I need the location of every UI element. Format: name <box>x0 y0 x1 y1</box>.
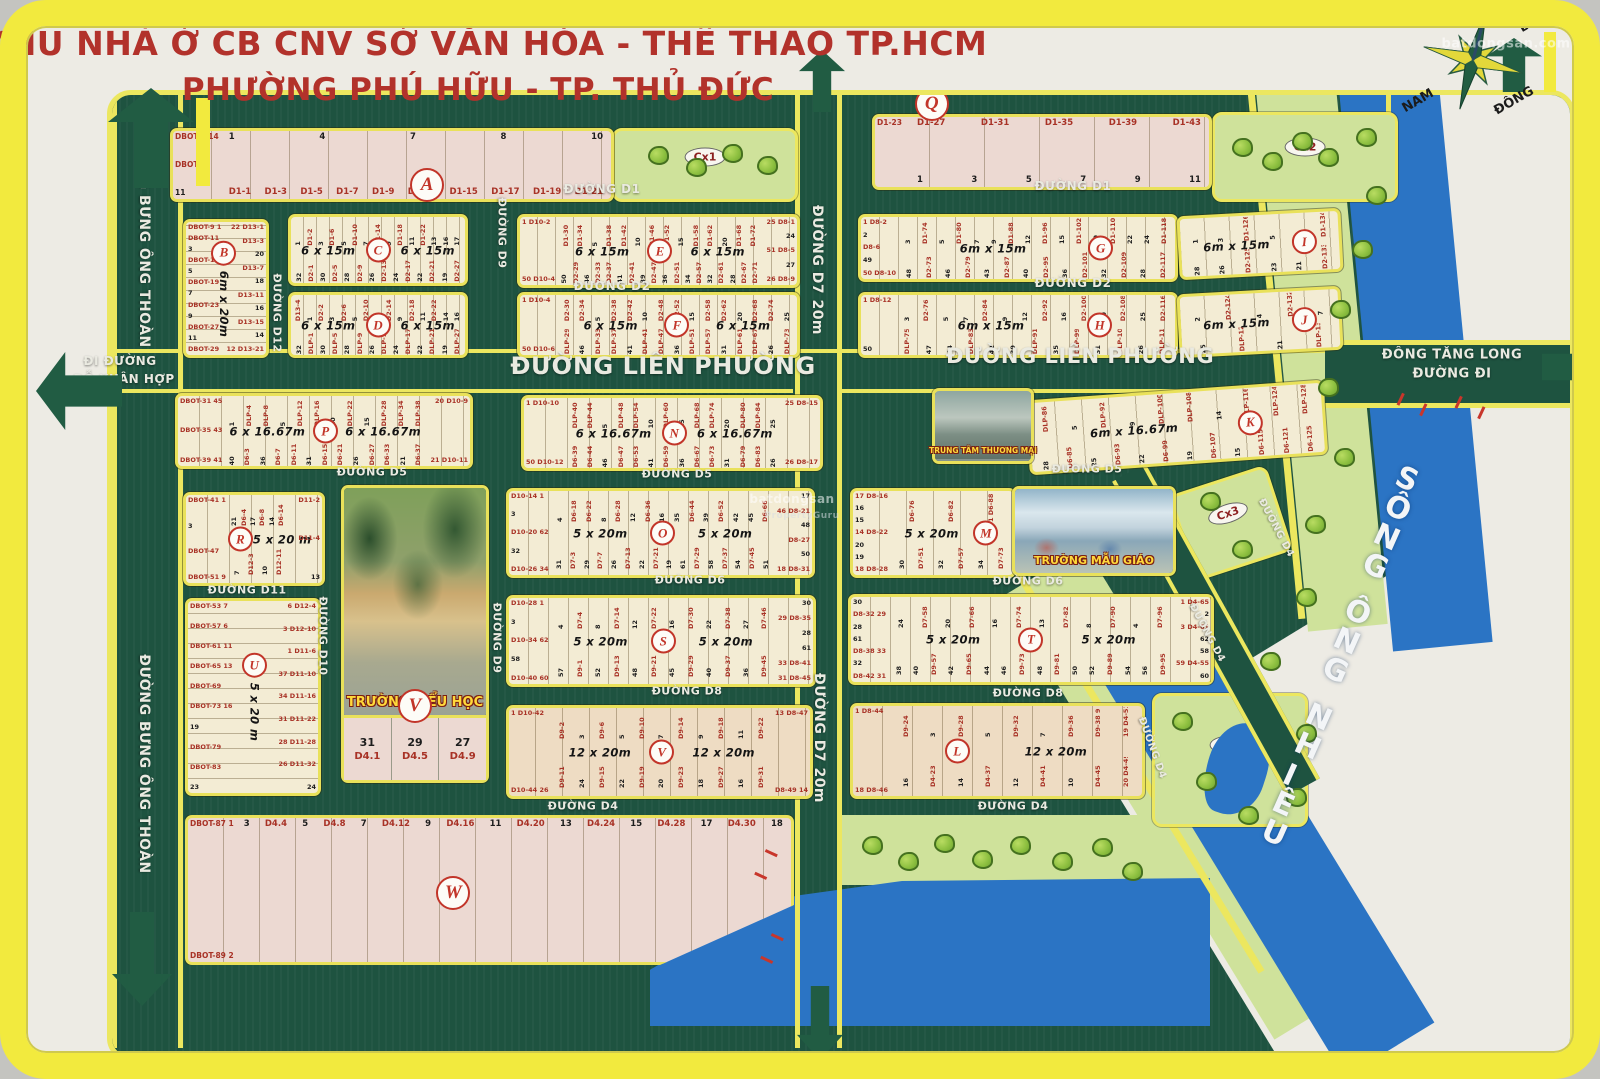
plot-label: D2-101 <box>1082 252 1089 278</box>
road-curb-line <box>112 95 117 1048</box>
block-L: 1 D8-4418 D8-46D9-243D9-285D9-327D9-36D9… <box>850 703 1145 799</box>
plot-label: D2-133 <box>1321 244 1329 269</box>
plot-label: 1 D10-4 <box>522 297 555 304</box>
plot-label: 7 <box>234 545 241 575</box>
block-bottom-labels: D6-39D6-4446D6-47D6-5341D6-5936D6-67D6-7… <box>566 437 784 468</box>
plot-label: D6-47 <box>618 438 625 467</box>
plot-label: 25 <box>770 399 777 428</box>
poster-title-line2: PHƯỜNG PHÚ HỮU - TP. THỦ ĐỨC <box>182 72 774 108</box>
block-N: 1 D10-1050 D10-12DLP-40DLP-445DLP-48DLP-… <box>521 395 823 471</box>
block-letter-W: W <box>436 876 470 910</box>
plot-label: 46 <box>602 438 609 467</box>
plot-label: D1-17 <box>491 188 519 197</box>
plot-label: D10-14 1 <box>511 493 549 500</box>
plot-label: 13 <box>1039 598 1046 628</box>
plot-label: D10-44 26 <box>511 787 549 794</box>
plot-cell: 27D4.9 <box>439 718 486 780</box>
plot-label: 10 <box>591 133 603 142</box>
street-label: ĐƯỜNG D11 <box>207 584 286 597</box>
block-center: D13-41D2-23D2-65D2-107D2-149D2-1811D2-22… <box>291 295 465 355</box>
plot-label: D9-10 <box>639 709 646 739</box>
plot-label: D4.28 <box>657 820 685 829</box>
plot-label: 1 D10-42 <box>511 710 549 717</box>
plot-label: D4.24 <box>587 820 615 829</box>
plot-label: DBOT-69 <box>190 683 230 690</box>
street-label: ĐÔNG TĂNG LONG <box>1382 348 1522 363</box>
plot-label: D10-28 1 <box>511 600 549 607</box>
plot-label: D11-2 <box>298 497 320 504</box>
plot-label: 15 <box>855 517 888 524</box>
tree-icon <box>1238 806 1259 825</box>
plot-label: D7-29 <box>694 539 701 569</box>
plot-label: 31 <box>721 329 728 354</box>
tree-icon <box>1305 515 1326 534</box>
plot-label: 1 D11-6 <box>288 648 316 655</box>
block-left-labels: 30D8-32 292861D8-38 3332D8-42 31 <box>851 597 888 682</box>
block-top-labels: DLP-40DLP-445DLP-48DLP-5410DLP-6015DLP-6… <box>566 398 784 429</box>
plot-label: 10 <box>642 296 649 321</box>
plot-label: D1-31 <box>981 119 1009 128</box>
plot-label: 41 <box>648 438 655 467</box>
plot-label: D2-71 <box>752 255 759 284</box>
plot-label: D1-80 <box>956 218 963 244</box>
plot-label: 7 <box>1317 291 1325 316</box>
plot-label: 19 <box>1093 218 1100 244</box>
block-left-labels: 17 D8-16161514 D8-22201918 D8-28 <box>853 491 890 575</box>
plot-label: D13-11 <box>238 292 264 299</box>
plot-label: D9-45 <box>761 647 768 677</box>
plot-label: 7 <box>188 290 221 297</box>
plot-label: D13-4 <box>295 296 302 321</box>
plot-label: D9-19 <box>639 758 646 788</box>
plot-label: DBOT-27 <box>188 324 221 331</box>
plot-label: D2-100 <box>1081 296 1088 321</box>
plot-label: 35 <box>674 492 681 522</box>
commercial-center: TRUNG TÂM THƯƠNG MẠI <box>932 388 1034 464</box>
block-letter-U: U <box>242 653 267 678</box>
plot-label: D2-79 <box>965 252 972 278</box>
plot-label: 28 <box>730 255 737 284</box>
block-left-labels: 1 D10-1050 D10-12 <box>524 398 566 468</box>
plot-label: 4 <box>558 599 565 629</box>
plot-label: 32 <box>296 329 303 354</box>
plot-label: 17 D8-16 <box>855 493 888 500</box>
plot-label: D12-3 <box>248 545 255 575</box>
block-right-labels: 3029 D8-35286133 D8-4131 D8-45 <box>776 598 813 684</box>
plot-label: 17 <box>701 820 713 829</box>
tree-icon <box>1296 588 1317 607</box>
plot-label: 28 <box>802 630 811 637</box>
plot-label: D6-44 <box>689 492 696 522</box>
plot-label: D9-81 <box>1054 645 1061 675</box>
plot-label: 30 <box>853 599 886 606</box>
plot-label: 48 <box>906 252 913 278</box>
plot-label: D2-125 <box>1244 248 1252 273</box>
plot-label: 30 <box>802 600 811 607</box>
plot-label: D1-43 <box>1173 119 1201 128</box>
plot-label: 15 <box>679 399 686 428</box>
block-left-labels: 1 D10-450 D10-6 <box>520 295 557 355</box>
plot-label: DLP-75 <box>904 329 911 354</box>
block-left-labels: DBOT-53 7DBOT-57 6DBOT-61 11DBOT-65 13DB… <box>188 601 232 793</box>
plot-label: D8-32 29 <box>853 611 886 618</box>
block-top-labels: D13-41D2-23D2-65D2-107D2-149D2-1811D2-22… <box>291 295 465 322</box>
plot-label: 3 <box>511 511 549 518</box>
tree-icon <box>1318 378 1339 397</box>
plot-label: 25 <box>1140 296 1147 321</box>
street-label: ĐƯỜNG LIÊN PHƯỜNG <box>510 352 815 380</box>
plot-label: DLP-124 <box>1272 387 1281 416</box>
plot-label: D2-38 <box>611 296 618 321</box>
plot-label: D11-4 <box>298 535 320 542</box>
tree-icon <box>1232 138 1253 157</box>
plot-label: D8-42 31 <box>853 673 886 680</box>
plot-label: D1-3 <box>265 188 287 197</box>
plot-label: D1-7 <box>336 188 358 197</box>
plot-label: 51 <box>763 539 770 569</box>
plot-label: D13-7 <box>242 265 264 272</box>
plot-label: 1 D8-12 <box>863 297 893 304</box>
plot-number: 31 <box>360 736 375 749</box>
plot-label: 21 <box>231 496 238 526</box>
plot-label: 5 <box>602 399 609 428</box>
plot-label: D2-5 <box>332 254 339 282</box>
plot-label: 58 <box>511 656 549 663</box>
block-right-labels: 25 D8-1526 D8-17 <box>783 398 820 468</box>
plot-label: 36 <box>260 436 267 465</box>
tree-icon <box>1196 772 1217 791</box>
plot-label: 15 <box>689 296 696 321</box>
plot-label: DBOT-51 9 <box>188 574 226 581</box>
plot-label: D1-39 <box>1109 119 1137 128</box>
plot-label: D9-57 <box>931 645 938 675</box>
plot-label: D2-17 <box>405 254 412 282</box>
plot-label: 18 D8-46 <box>855 787 888 794</box>
plot-label: D2-84 <box>982 296 989 321</box>
plot-label: DLP-8 <box>263 397 270 426</box>
plot-label: 26 <box>768 329 775 354</box>
plot-label: 21 <box>1276 324 1284 349</box>
plot-label: 15 <box>1234 428 1243 457</box>
plot-label: 14 D8-22 <box>855 529 888 536</box>
plot-label: 57 <box>558 647 565 677</box>
block-top-labels: 2D2-1244D2-1327 <box>1180 289 1339 324</box>
block-left-labels: DBOT-41 13DBOT-47DBOT-51 9 <box>186 495 228 583</box>
block-top-labels: D1-30D1-345D1-38D1-4210D1-46D1-5215D1-58… <box>557 217 763 248</box>
plot-label: DBOT-47 <box>188 548 226 555</box>
plot-label: D1-6 <box>329 218 336 246</box>
street-label: ĐƯỜNG D10 <box>317 596 330 675</box>
plot-label: DLP-1 <box>308 329 315 354</box>
plot-label: 31 D11-22 <box>279 716 317 723</box>
plot-label: 11 <box>409 218 416 246</box>
commercial-center-caption: TRUNG TÂM THƯƠNG MẠI <box>929 446 1037 455</box>
plot-label: D2-42 <box>627 296 634 321</box>
plot-label: D7-45 <box>749 539 756 569</box>
plot-label: 24 <box>1144 218 1151 244</box>
plot-label: D7-90 <box>1110 598 1117 628</box>
plot-label: 3 <box>1217 218 1225 243</box>
plot-label: 4 <box>557 492 564 522</box>
plot-label: 46 <box>579 329 586 354</box>
street-label: ĐƯỜNG D2 <box>574 279 651 293</box>
plot-label: D1-14 <box>375 218 382 246</box>
plot-label: DLP-131 <box>1315 322 1323 347</box>
tree-icon <box>862 836 883 855</box>
block-left-labels: DBOT-87 1DBOT-89 2 <box>188 818 236 962</box>
plot-label: 45 <box>669 647 676 677</box>
plot-label: D1-22 <box>420 218 427 246</box>
primary-school-photo <box>344 488 486 718</box>
plot-label: 11 <box>175 189 219 197</box>
plot-label: 50 <box>561 255 568 284</box>
plot-label: 14 <box>1214 391 1223 420</box>
block-top-labels: D6-76D6-821 D6-88 <box>890 491 1013 528</box>
plot-label: D4.30 <box>728 820 756 829</box>
block-top-labels: 3D2-7657D2-84912D2-9216D2-10020D2-10825D… <box>895 295 1175 322</box>
plot-label: DLP-5 <box>332 329 339 354</box>
block-center: 4D6-18D6-228D6-2812D6-361635D6-4439D6-52… <box>551 491 776 575</box>
plot-label: D6-3 <box>244 436 251 465</box>
plot-label: 32 <box>511 548 549 555</box>
plot-label: 24 <box>307 784 316 791</box>
block-bottom-labels: 32DLP-130DLP-528DLP-926DLP-1324DLP-1722D… <box>291 328 465 355</box>
street-label: ĐƯỜNG D5 <box>337 466 408 479</box>
plot-label: DLP-40 <box>572 399 579 428</box>
plot-label: 9 <box>188 313 221 320</box>
block-F: 1 D10-450 D10-6D2-30D2-345D2-38D2-4210D2… <box>517 292 800 358</box>
plot-label: 54 <box>1125 645 1132 675</box>
plot-label: D7-74 <box>1016 598 1023 628</box>
tree-icon <box>898 852 919 871</box>
block-top-labels: 21D6-417D6-814D6-14 <box>228 495 288 534</box>
plot-label: 52 <box>1089 645 1096 675</box>
plot-label: DBOT-53 7 <box>190 603 230 610</box>
street-label: ĐƯỜNG D6 <box>655 574 726 587</box>
plot-label: 11 <box>1189 176 1201 185</box>
plot-label: 22 D13-1 <box>231 224 264 231</box>
plot-label: D6-107 <box>1210 429 1219 458</box>
plot-label: D6-33 <box>384 436 391 465</box>
plot-label: 50 <box>863 346 893 353</box>
plot-label: 33 D8-41 <box>778 660 811 667</box>
plot-label: DLP-17 <box>405 329 412 354</box>
plot-label: D6-14 <box>278 496 285 526</box>
plot-label: 20 <box>658 758 665 788</box>
plot-label: D7-82 <box>1063 598 1070 628</box>
plot-label: D7-14 <box>614 599 621 629</box>
plot-label: 3 <box>329 296 336 321</box>
plot-label: 7 <box>363 218 370 246</box>
plot-label: 18 D8-31 <box>777 566 810 573</box>
plot-label: 20 D10-9 <box>435 398 468 405</box>
plot-label: D2-21 <box>429 254 436 282</box>
plot-label: D6-52 <box>718 492 725 522</box>
plot-label: D7-22 <box>651 599 658 629</box>
plot-label: 32 <box>938 539 945 569</box>
plot-label: 19 <box>442 254 449 282</box>
plot-label: 16 <box>992 598 999 628</box>
plot-label: 1 <box>917 176 923 185</box>
plot-label: 16 <box>659 492 666 522</box>
plot-label: DLP-92 <box>1099 399 1108 428</box>
plot-label: 43 <box>984 252 991 278</box>
plot-label: D1-19 <box>533 188 561 197</box>
block-center: 4D7-48D7-1412D7-2216D7-3022D7-3827D7-465… <box>551 598 777 684</box>
plot-label: D1-126 <box>1242 217 1250 242</box>
plot-label: D7-46 <box>761 599 768 629</box>
plot-label: DBOT-23 <box>188 302 221 309</box>
plot-label: D9-36 <box>1068 707 1075 737</box>
plot-label: D4.16 <box>446 820 474 829</box>
plot-label: 34 <box>978 539 985 569</box>
plot-label: DLP-51 <box>689 329 696 354</box>
plot-label: 3 <box>511 619 549 626</box>
block-left-labels: DBOT-9 1DBOT-113DBOT-155DBOT-197DBOT-239… <box>186 222 223 355</box>
block-letter-holder: Q <box>915 90 949 121</box>
plot-label: 7 <box>1294 214 1302 239</box>
plot-label: 40 <box>706 647 713 677</box>
plot-label: D4-23 <box>930 757 937 787</box>
plot-label: D2-14 <box>386 296 393 321</box>
plot-label: 27 <box>743 599 750 629</box>
tree-icon <box>1356 128 1377 147</box>
plot-label: 11 <box>738 709 745 739</box>
plot-label: 26 <box>770 438 777 467</box>
plot-label: DLP-123 <box>1238 326 1246 351</box>
plot-label: DLP-41 <box>642 329 649 354</box>
plot-label: 50 D8-10 <box>863 270 896 277</box>
plot-label: D6-36 <box>645 492 652 522</box>
plot-label: 41 <box>627 329 634 354</box>
plot-label: 58 <box>708 539 715 569</box>
plot-label: 5 <box>595 296 602 321</box>
plot-label: D9-29 <box>688 647 695 677</box>
plot-label: D9-21 <box>651 647 658 677</box>
plot-label: 5 <box>939 218 946 244</box>
street-label: ĐI ĐƯỜNG <box>83 354 156 368</box>
tree-icon <box>1122 862 1143 881</box>
plot-label: 40 <box>1023 252 1030 278</box>
plot-label: 12 <box>1013 757 1020 787</box>
plot-label: D1-68 <box>736 218 743 247</box>
plot-label: D6-125 <box>1306 423 1315 452</box>
plot-label: D8-49 14 <box>775 787 808 794</box>
tree-icon <box>1262 152 1283 171</box>
plot-label: 9 <box>425 820 431 829</box>
plot-label: D1-35 <box>1045 119 1073 128</box>
plot-label: D2-95 <box>1043 252 1050 278</box>
block-top-labels: 3D1-745D1-8079D1-8812D1-9615D1-10219D1-1… <box>898 217 1175 245</box>
block-center: 3D4.45D4.87D4.129D4.1611D4.2013D4.2415D4… <box>236 818 791 962</box>
plot-label: D6-76 <box>909 492 916 522</box>
plot-label: D2-10 <box>363 296 370 321</box>
street-label: ĐƯỜNG D9 <box>491 603 504 674</box>
plot-label: D2-27 <box>454 254 461 282</box>
plot-label: 15 <box>364 397 371 426</box>
plot-label: D2-57 <box>696 255 703 284</box>
plot-label: DLP-73 <box>784 329 791 354</box>
block-center: 13D1-12657D1-1346m x 15mI2826D2-1252321D… <box>1180 211 1341 277</box>
plot-label: D1-18 <box>397 218 404 246</box>
plot-label: D1-62 <box>707 218 714 247</box>
plot-label: 50 D10-12 <box>526 459 564 466</box>
plot-label: 54 <box>735 539 742 569</box>
plot-label: 14 <box>443 296 450 321</box>
plot-label: 3 <box>905 218 912 244</box>
plot-label: D1-46 <box>649 218 656 247</box>
block-right-labels: 22 D13-1D13-320D13-718D13-1116D13-151412… <box>225 222 267 355</box>
plot-label: 21 <box>400 436 407 465</box>
block-center: D6-76D6-821 D6-885 x 20mM30D7-5132D7-573… <box>890 491 1013 575</box>
plot-label: 7 <box>963 296 970 321</box>
plot-label: DLP-86 <box>1041 403 1050 432</box>
street-label: ĐƯỜNG D1 <box>1035 179 1112 193</box>
plot-label: 26 <box>369 254 376 282</box>
plot-label: 50 <box>801 551 810 558</box>
plot-label: D12-11 <box>276 545 283 575</box>
plot-label: 40 <box>913 645 920 675</box>
plot-label: 1 <box>295 218 302 246</box>
plot-label: 9 <box>397 296 404 321</box>
plot-label: DLP-116 <box>1243 389 1252 418</box>
plot-label: 30 <box>320 254 327 282</box>
block-bottom-labels: 40D6-336D6-7D6-1131D6-15D6-2126D6-27D6-3… <box>222 435 429 466</box>
block-center: D1-30D1-345D1-38D1-4210D1-46D1-5215D1-58… <box>557 217 763 285</box>
plot-label: DLP-9 <box>357 329 364 354</box>
plot-label: D2-13 <box>381 254 388 282</box>
block-top-labels: 3D4.45D4.87D4.129D4.1611D4.2013D4.2415D4… <box>236 818 791 831</box>
plot-label: 1 D8-2 <box>863 219 896 226</box>
plot-label: 28 <box>1041 441 1050 470</box>
plot-label: D2-87 <box>1004 252 1011 278</box>
street-label: ĐƯỜNG D8 <box>993 687 1064 700</box>
plot-label: 20 <box>255 251 264 258</box>
plot-label: 36 <box>1062 252 1069 278</box>
plot-label: D9-13 <box>614 647 621 677</box>
plot-label: 4 <box>319 133 325 142</box>
plot-label: 22 <box>417 254 424 282</box>
plot-label: D6-121 <box>1282 424 1291 453</box>
plot-label: 48 <box>1037 645 1044 675</box>
plot-label: DLP-34 <box>398 397 405 426</box>
plot-label: 9 <box>1128 397 1137 426</box>
block-letter-Q: Q <box>915 90 949 121</box>
plot-label: D2-109 <box>1121 252 1128 278</box>
plot-label: D1-42 <box>621 218 628 247</box>
plot-label: 5 <box>1070 401 1079 430</box>
plot-label: 14 <box>255 332 264 339</box>
plot-id: D4.9 <box>450 751 476 762</box>
tree-icon <box>1352 240 1373 259</box>
tree-icon <box>1366 186 1387 205</box>
plot-label: DLP-108 <box>1185 393 1194 422</box>
plot-label: 17 <box>454 218 461 246</box>
plot-label: 7 <box>361 820 367 829</box>
plot-label: DBOT-9 1 <box>188 224 221 231</box>
plot-label: 10 <box>262 545 269 575</box>
plot-label: D1-110 <box>1110 218 1117 244</box>
plot-label: 7 <box>375 296 382 321</box>
plot-label: 13 D8-47 <box>775 710 808 717</box>
plot-label: D8-27 <box>788 537 810 544</box>
plot-label: 15 <box>1059 218 1066 244</box>
plot-label: DBOT-15 <box>188 257 221 264</box>
plot-label: 22 <box>639 539 646 569</box>
block-center: D9-243D9-285D9-327D9-36D9-38 919 D4-51L1… <box>890 706 1142 796</box>
plot-label: 40 <box>229 436 236 465</box>
plot-label: DBOT-61 11 <box>190 643 230 650</box>
